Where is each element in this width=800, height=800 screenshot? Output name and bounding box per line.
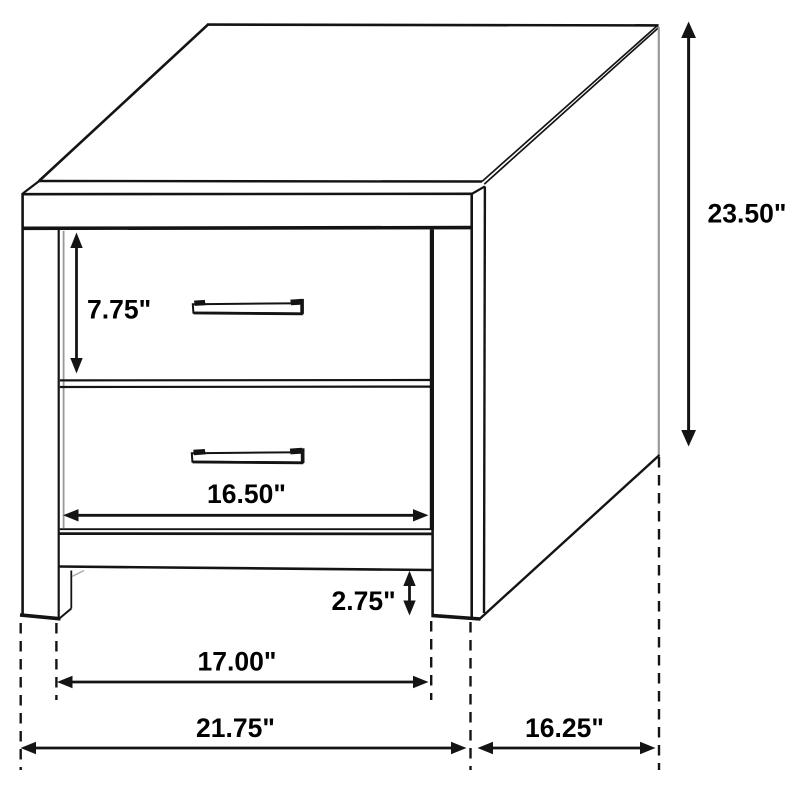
svg-text:16.50": 16.50" (207, 479, 286, 509)
svg-text:7.75": 7.75" (87, 295, 151, 325)
svg-text:16.25": 16.25" (525, 713, 604, 743)
svg-text:2.75": 2.75" (332, 586, 396, 616)
svg-text:17.00": 17.00" (198, 647, 277, 677)
svg-text:21.75": 21.75" (196, 713, 275, 743)
svg-text:23.50": 23.50" (708, 199, 787, 229)
